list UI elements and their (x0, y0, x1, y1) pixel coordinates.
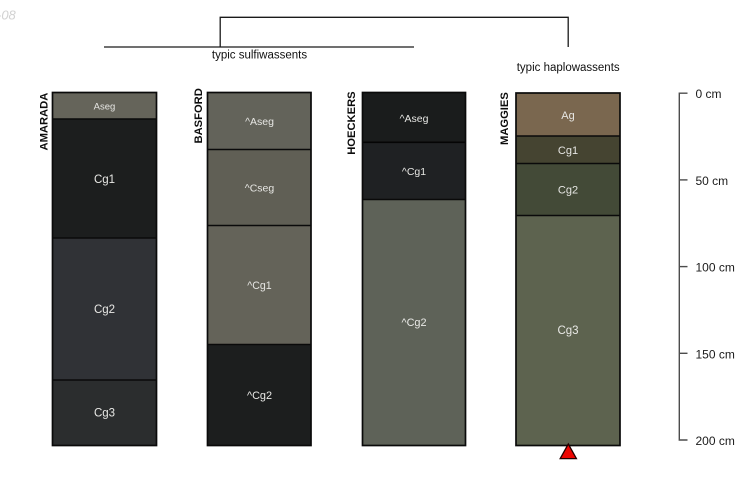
svg-text:Aseg: Aseg (94, 101, 116, 112)
svg-text:Cg1: Cg1 (558, 145, 578, 157)
svg-text:Cg3: Cg3 (94, 408, 115, 420)
svg-text:0 cm: 0 cm (696, 87, 722, 101)
svg-text:^Cg2: ^Cg2 (401, 317, 426, 329)
svg-text:AMARADA: AMARADA (38, 93, 50, 151)
svg-text:Cg1: Cg1 (94, 174, 115, 186)
svg-text:^Cseg: ^Cseg (245, 182, 275, 194)
svg-text:^Aseg: ^Aseg (400, 113, 429, 125)
svg-text:Cg3: Cg3 (557, 325, 578, 337)
svg-text:Cg2: Cg2 (558, 184, 578, 196)
svg-text:typic haplowassents: typic haplowassents (517, 62, 620, 74)
svg-text:BASFORD: BASFORD (193, 88, 205, 143)
svg-text:MAGGIES: MAGGIES (499, 92, 511, 145)
svg-text:Cg2: Cg2 (94, 304, 115, 316)
svg-text:^Cg1: ^Cg1 (247, 280, 272, 292)
svg-text:typic sulfiwassents: typic sulfiwassents (212, 49, 307, 61)
svg-text:HOECKERS: HOECKERS (346, 91, 358, 155)
svg-text:200 cm: 200 cm (696, 434, 735, 448)
svg-text:^Aseg: ^Aseg (245, 116, 274, 128)
svg-text:^Cg2: ^Cg2 (247, 390, 272, 402)
svg-text:Ag: Ag (561, 110, 574, 122)
svg-text:100 cm: 100 cm (696, 261, 735, 275)
svg-text:50 cm: 50 cm (696, 174, 729, 188)
svg-text:150 cm: 150 cm (696, 347, 735, 361)
svg-text:^Cg1: ^Cg1 (402, 166, 426, 178)
svg-text:-08: -08 (0, 7, 17, 22)
